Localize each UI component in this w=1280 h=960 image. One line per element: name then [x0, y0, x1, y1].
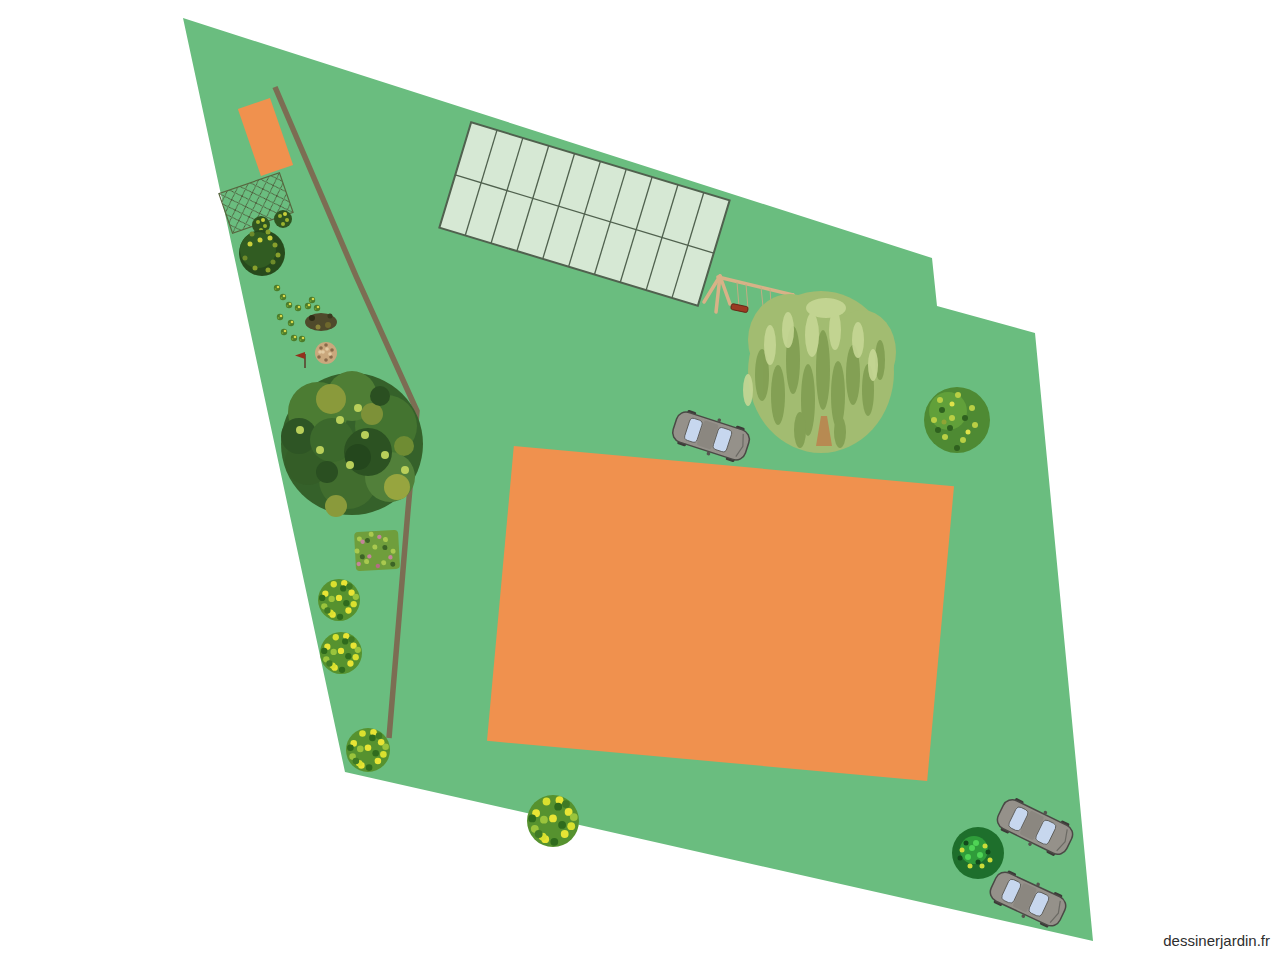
small-shrub[interactable]	[274, 210, 292, 228]
dry-plant-cluster[interactable]	[305, 313, 337, 331]
round-shrub-right[interactable]	[924, 387, 990, 453]
garden-plan-canvas[interactable]: dessinerjardin.fr	[0, 0, 1280, 960]
dark-shrub-bottom-right[interactable]	[952, 827, 1004, 879]
garden-plan-drawing[interactable]	[0, 0, 1280, 960]
dried-flower-bush[interactable]	[315, 342, 337, 364]
yellow-flowering-bush[interactable]	[527, 795, 579, 847]
yellow-flowering-bush[interactable]	[318, 579, 360, 621]
house-footprint[interactable]	[487, 446, 954, 781]
site-watermark: dessinerjardin.fr	[1163, 932, 1270, 950]
flower-bed[interactable]	[354, 530, 400, 571]
yellow-flowering-bush[interactable]	[320, 632, 362, 674]
yellow-flowering-bush[interactable]	[346, 728, 390, 772]
